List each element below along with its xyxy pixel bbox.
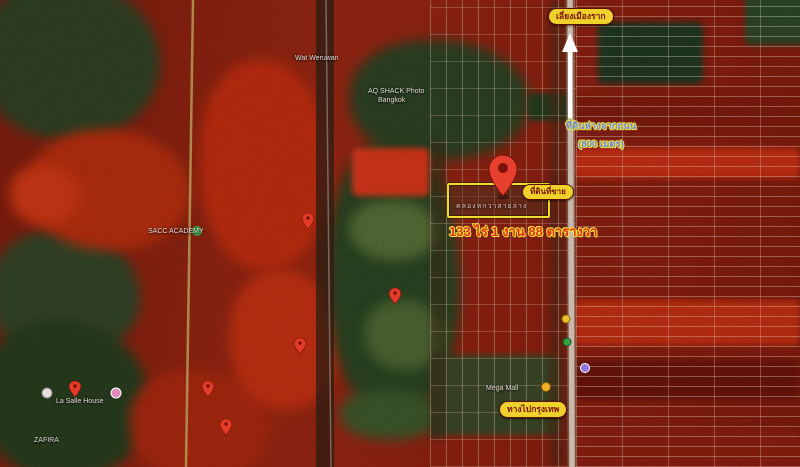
satellite-map[interactable]: เลี่ยงเมืองราก ที่ดินห่างจากถนน (800 เมต…: [0, 0, 800, 467]
poi-circle-pink: [111, 388, 121, 398]
place-label[interactable]: SACC ACADEMY: [148, 227, 204, 236]
place-label[interactable]: ZAFIRA: [34, 436, 59, 445]
setback-distance-label: ที่ดินห่างจากถนน (800 เมตร): [553, 118, 649, 154]
map-pin[interactable]: [294, 338, 306, 354]
poi-dot-yellow: [562, 315, 570, 323]
place-label[interactable]: La Salle House: [56, 397, 103, 406]
markers-layer: [0, 0, 800, 467]
plot-area-label: 133 ไร่ 1 งาน 88 ตารางวา: [449, 221, 597, 242]
poi-circle-white: [42, 388, 52, 398]
poi-pin-yellow[interactable]: [542, 383, 551, 392]
map-pin[interactable]: [302, 213, 314, 229]
place-label[interactable]: Wat Weruwan: [295, 54, 339, 63]
place-label[interactable]: Bangkok: [378, 96, 405, 105]
property-pin[interactable]: [489, 155, 517, 200]
for-sale-tag: ที่ดินที่ขาย: [522, 184, 574, 200]
map-pin[interactable]: [69, 381, 81, 397]
map-pin[interactable]: [220, 419, 232, 435]
canal-label: คลองหกวาสายล่าง: [456, 202, 527, 211]
map-pin[interactable]: [389, 288, 401, 304]
direction-arrow-north: [562, 33, 578, 118]
place-label[interactable]: AQ SHACK Photo: [368, 87, 424, 96]
bypass-road-label: เลี่ยงเมืองราก: [548, 8, 614, 25]
to-bangkok-label: ทางไปกรุงเทพ: [499, 401, 567, 418]
poi-dot-green: [563, 338, 571, 346]
setback-line1: ที่ดินห่างจากถนน: [566, 121, 637, 132]
map-pin[interactable]: [202, 381, 214, 397]
place-label[interactable]: Mega Mall: [486, 384, 518, 393]
poi-pin-purple[interactable]: [581, 364, 590, 373]
setback-line2: (800 เมตร): [578, 139, 624, 150]
